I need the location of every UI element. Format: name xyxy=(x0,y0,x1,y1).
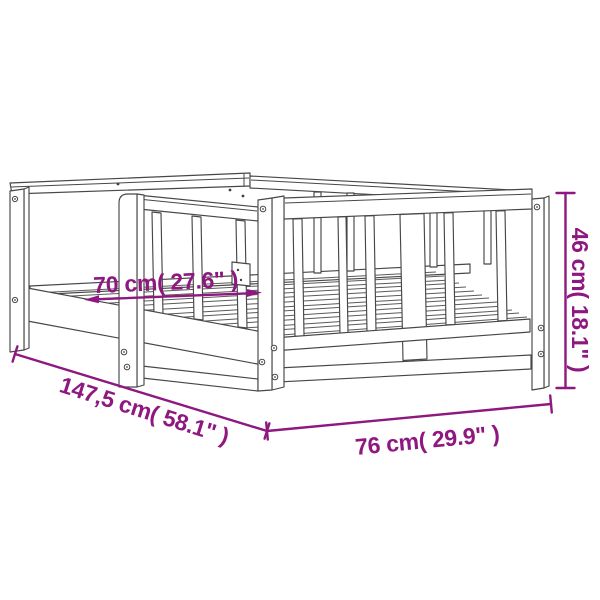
bed-frame xyxy=(10,173,549,391)
side-base-boards xyxy=(22,287,268,391)
height-dimension-label: 46 cm( 18.1" ) xyxy=(567,228,593,373)
dimension-diagram: 70 cm( 27.6" ) 147,5 cm( 58.1" ) 76 cm( … xyxy=(0,0,600,600)
bed-frame-illustration: 70 cm( 27.6" ) 147,5 cm( 58.1" ) 76 cm( … xyxy=(0,0,600,600)
inner-width-dimension-label: 70 cm( 27.6" ) xyxy=(93,266,239,298)
right-corner-post xyxy=(532,196,549,390)
back-left-post xyxy=(10,187,29,352)
side-rail-panel xyxy=(137,195,258,328)
width-dimension-label: 76 cm( 29.9" ) xyxy=(354,420,501,460)
